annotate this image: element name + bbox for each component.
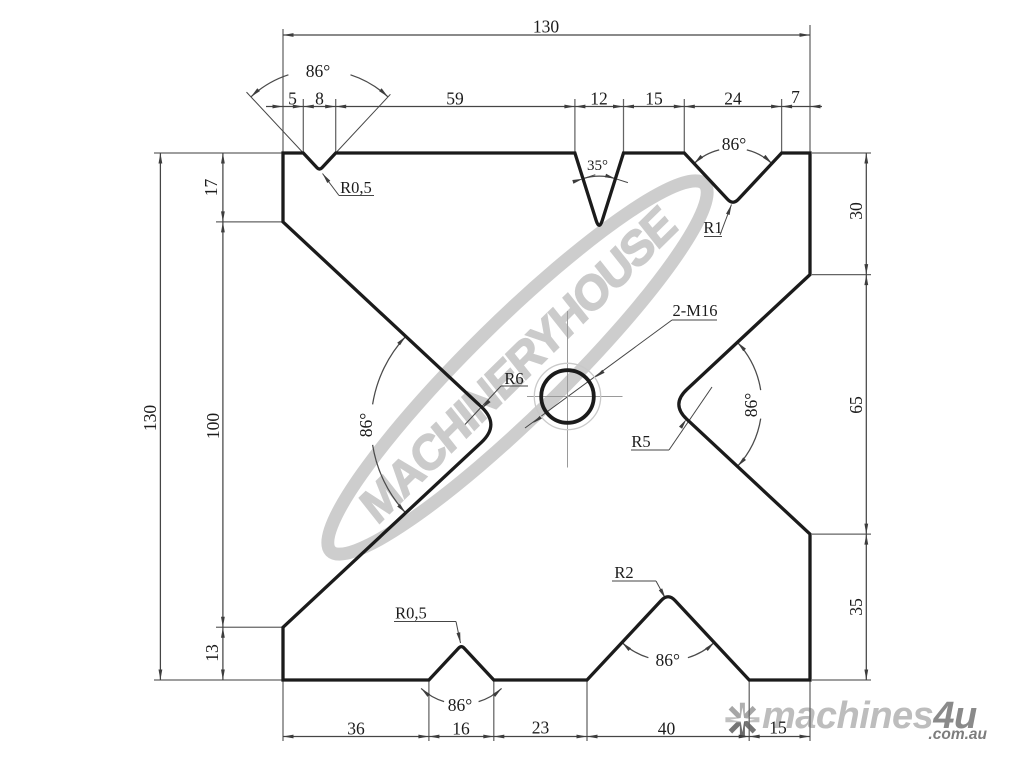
svg-text:86°: 86°	[741, 393, 761, 418]
svg-text:15: 15	[645, 89, 663, 109]
svg-text:35: 35	[846, 598, 866, 616]
svg-text:40: 40	[658, 719, 676, 739]
svg-text:R0,5: R0,5	[395, 604, 427, 623]
svg-text:15: 15	[769, 718, 787, 738]
svg-text:86°: 86°	[655, 650, 680, 670]
svg-text:R1: R1	[703, 218, 722, 237]
svg-text:16: 16	[452, 719, 470, 739]
svg-text:130: 130	[533, 17, 560, 37]
svg-text:8: 8	[315, 89, 324, 109]
svg-text:86°: 86°	[306, 61, 331, 81]
svg-text:12: 12	[590, 89, 608, 109]
svg-text:86°: 86°	[448, 695, 473, 715]
svg-text:59: 59	[446, 89, 464, 109]
svg-text:23: 23	[532, 718, 550, 738]
svg-text:65: 65	[846, 396, 866, 414]
svg-text:5: 5	[288, 89, 297, 109]
svg-text:.com.au: .com.au	[928, 726, 987, 743]
svg-text:7: 7	[791, 87, 800, 107]
svg-text:2-M16: 2-M16	[673, 301, 718, 320]
svg-text:17: 17	[201, 179, 221, 197]
svg-text:24: 24	[724, 89, 742, 109]
svg-text:86°: 86°	[356, 413, 376, 438]
svg-text:R5: R5	[631, 432, 650, 451]
svg-text:R0,5: R0,5	[340, 178, 372, 197]
svg-text:100: 100	[203, 413, 223, 440]
svg-text:130: 130	[140, 405, 160, 432]
svg-text:R6: R6	[504, 369, 523, 388]
svg-text:35°: 35°	[587, 158, 608, 174]
svg-text:R2: R2	[614, 563, 633, 582]
svg-text:30: 30	[846, 202, 866, 220]
svg-text:13: 13	[202, 644, 222, 662]
svg-text:86°: 86°	[722, 134, 747, 154]
svg-text:36: 36	[347, 719, 365, 739]
